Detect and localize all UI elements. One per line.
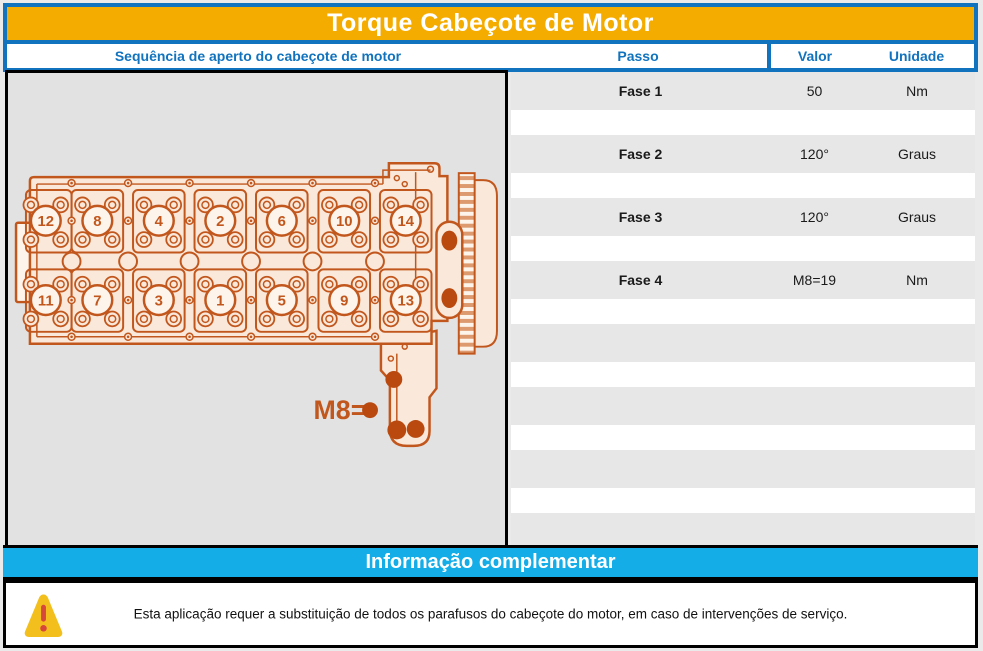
valve-circle <box>289 311 304 326</box>
table-row <box>511 513 975 545</box>
info-header-title: Informação complementar <box>365 551 615 574</box>
table-row: Fase 2120°Graus <box>511 135 975 173</box>
valve-circle <box>75 232 90 247</box>
torque-rows: Fase 150NmFase 2120°GrausFase 3120°Graus… <box>511 72 975 545</box>
m8-bolt-dot <box>387 421 406 440</box>
band-circle <box>242 252 260 270</box>
info-box: Esta aplicação requer a substituição de … <box>3 580 978 648</box>
bolt-number-label: 12 <box>38 214 55 230</box>
bolt-number-label: 11 <box>38 294 54 310</box>
warning-text: Esta aplicação requer a substituição de … <box>6 607 975 622</box>
hole-dot <box>250 219 253 222</box>
valve-circle <box>383 311 398 326</box>
m8-bolt-dot <box>441 288 457 308</box>
table-row <box>511 450 975 488</box>
table-row: Fase 3120°Graus <box>511 198 975 236</box>
timing-cap-shape <box>474 180 497 347</box>
cell-unit: Graus <box>859 146 975 162</box>
hole-dot <box>311 219 314 222</box>
cell-unit: Nm <box>859 83 975 99</box>
hole-dot <box>311 335 314 338</box>
header-unit: Unidade <box>859 44 974 68</box>
hole-dot <box>374 335 377 338</box>
cell-value: 120° <box>770 146 859 162</box>
page-title: Torque Cabeçote de Motor <box>327 9 654 38</box>
valve-circle <box>166 311 181 326</box>
m8-bolt-dot <box>441 231 457 251</box>
valve-circle <box>23 311 38 326</box>
header-step: Passo <box>509 44 767 68</box>
cell-value: M8=19 <box>770 272 859 288</box>
bolt-number-label: 4 <box>155 214 164 230</box>
valve-circle <box>23 232 38 247</box>
bolt-number-label: 7 <box>93 294 101 310</box>
head-diagram-svg: 1284261014117315913M8= <box>8 73 505 545</box>
bolt-number-label: 9 <box>340 294 348 310</box>
band-circle <box>119 252 137 270</box>
valve-circle <box>259 232 274 247</box>
bolt-number-label: 1 <box>216 294 224 310</box>
m8-bolt-dot <box>407 420 425 438</box>
hole-dot <box>188 182 191 185</box>
hole-dot <box>127 299 130 302</box>
valve-circle <box>137 311 152 326</box>
cylinder-head-diagram-panel: 1284261014117315913M8= <box>5 70 508 548</box>
table-header: Sequência de aperto do cabeçote de motor… <box>3 44 978 72</box>
bolt-number-label: 5 <box>278 294 286 310</box>
hole-dot <box>127 219 130 222</box>
header-sequence: Sequência de aperto do cabeçote de motor <box>7 44 509 68</box>
valve-circle <box>228 232 243 247</box>
hole-dot <box>188 335 191 338</box>
valve-circle <box>53 311 68 326</box>
band-circle <box>366 252 384 270</box>
bolt-number-label: 2 <box>216 214 224 230</box>
hole-dot <box>250 299 253 302</box>
cell-step: Fase 1 <box>511 83 770 99</box>
table-row: Fase 4M8=19Nm <box>511 261 975 299</box>
valve-circle <box>413 232 428 247</box>
hole-dot <box>70 299 73 302</box>
title-bar: Torque Cabeçote de Motor <box>3 3 978 44</box>
valve-circle <box>322 232 337 247</box>
bolt-number-label: 3 <box>155 294 163 310</box>
valve-circle <box>166 232 181 247</box>
hole-dot <box>70 335 73 338</box>
valve-circle <box>75 311 90 326</box>
m8-legend-label: M8= <box>314 395 367 425</box>
hole-dot <box>70 219 73 222</box>
header-value: Valor <box>771 44 859 68</box>
cell-value: 120° <box>770 209 859 225</box>
valve-circle <box>352 311 367 326</box>
band-circle <box>63 252 81 270</box>
hole-dot <box>374 219 377 222</box>
hole-dot <box>188 299 191 302</box>
valve-circle <box>259 311 274 326</box>
cell-value: 50 <box>770 83 859 99</box>
cell-unit: Nm <box>859 272 975 288</box>
valve-circle <box>352 232 367 247</box>
bolt-number-label: 8 <box>93 214 101 230</box>
table-row: Fase 150Nm <box>511 72 975 110</box>
valve-circle <box>383 232 398 247</box>
hole-dot <box>127 335 130 338</box>
table-row <box>511 387 975 425</box>
cell-unit: Graus <box>859 209 975 225</box>
hole-dot <box>374 182 377 185</box>
cell-step: Fase 4 <box>511 272 770 288</box>
table-row <box>511 324 975 362</box>
band-circle <box>304 252 322 270</box>
valve-circle <box>198 232 213 247</box>
hole-dot <box>374 299 377 302</box>
valve-circle <box>413 311 428 326</box>
hole-dot <box>127 182 130 185</box>
valve-circle <box>53 232 68 247</box>
m8-bolt-dot <box>385 371 402 388</box>
bolt-number-label: 14 <box>397 214 414 230</box>
hole-dot <box>250 335 253 338</box>
hole-dot <box>70 182 73 185</box>
valve-circle <box>137 232 152 247</box>
valve-circle <box>198 311 213 326</box>
hole-dot <box>311 299 314 302</box>
cell-step: Fase 3 <box>511 209 770 225</box>
bolt-cells-group: 1284261014117315913M8= <box>23 180 431 425</box>
hole-dot <box>311 182 314 185</box>
m8-legend-dot <box>362 402 378 418</box>
valve-circle <box>105 232 120 247</box>
band-circle <box>181 252 199 270</box>
bolt-number-label: 6 <box>278 214 286 230</box>
hole-dot <box>250 182 253 185</box>
info-header-bar: Informação complementar <box>3 545 978 580</box>
valve-circle <box>289 232 304 247</box>
valve-circle <box>105 311 120 326</box>
cell-step: Fase 2 <box>511 146 770 162</box>
valve-circle <box>322 311 337 326</box>
bolt-number-label: 13 <box>397 294 414 310</box>
bolt-number-label: 10 <box>336 214 353 230</box>
valve-circle <box>228 311 243 326</box>
hole-dot <box>188 219 191 222</box>
